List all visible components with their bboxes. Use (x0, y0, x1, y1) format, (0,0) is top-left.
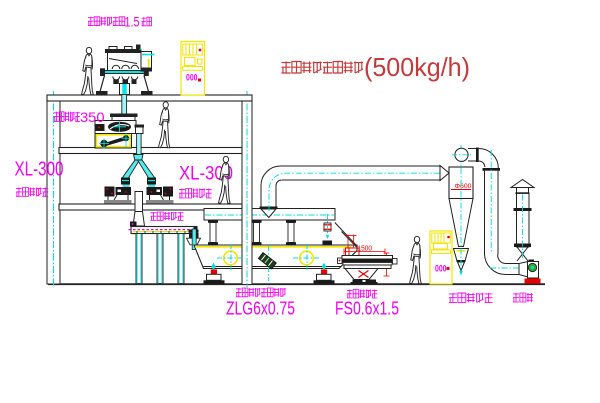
svg-text:1.5: 1.5 (125, 14, 140, 30)
svg-text:1500: 1500 (358, 246, 373, 253)
svg-text:ZLG6x0.75: ZLG6x0.75 (226, 299, 295, 319)
svg-text:Φ600: Φ600 (455, 183, 472, 190)
svg-text:350: 350 (80, 109, 105, 125)
svg-text:XL-300: XL-300 (15, 159, 64, 181)
svg-text:000: 000 (186, 73, 198, 84)
svg-text:FS0.6x1.5: FS0.6x1.5 (335, 299, 399, 319)
svg-text:(500kg/h): (500kg/h) (364, 52, 470, 82)
svg-text:000: 000 (435, 264, 447, 275)
